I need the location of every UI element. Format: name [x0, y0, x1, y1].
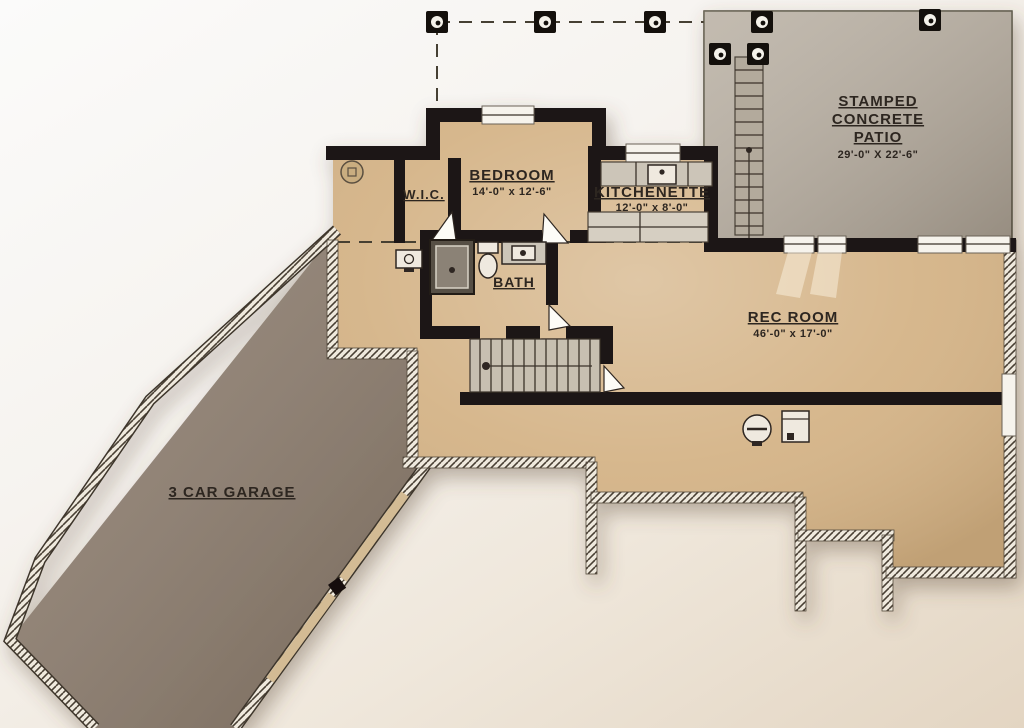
side-window — [1002, 374, 1016, 436]
structural-column — [341, 161, 363, 183]
toilet — [478, 242, 498, 278]
deck-post-icon — [644, 11, 666, 33]
bedroom-label: BEDROOM — [469, 167, 554, 184]
patio-label-line2: CONCRETE — [832, 111, 924, 128]
floor-plan-drawing: BEDROOM 14'-0" x 12'-6" W.I.C. KITCHENET… — [0, 0, 1024, 728]
shower — [430, 240, 474, 294]
deck-post-icon — [709, 43, 731, 65]
main-stairs — [470, 339, 600, 392]
kitchenette-dims: 12'-0" x 8'-0" — [616, 202, 689, 214]
deck-post-icon — [747, 43, 769, 65]
rec-room-dims: 46'-0" x 17'-0" — [753, 328, 832, 340]
wic-label: W.I.C. — [403, 187, 444, 202]
rec-room-label: REC ROOM — [748, 309, 839, 326]
furnace — [782, 411, 809, 442]
patio-stairs — [735, 57, 763, 246]
kitchenette-label: KITCHENETTE — [594, 184, 710, 201]
vanity-sink — [502, 242, 546, 264]
rec-room-window-1 — [784, 236, 814, 253]
bedroom-dims: 14'-0" x 12'-6" — [472, 186, 551, 198]
patio-label-line1: STAMPED — [838, 93, 917, 110]
garage-label: 3 CAR GARAGE — [168, 484, 295, 501]
bedroom-window — [482, 106, 534, 124]
rec-room-window-3 — [918, 236, 962, 253]
floor-plan-canvas: BEDROOM 14'-0" x 12'-6" W.I.C. KITCHENET… — [0, 0, 1024, 728]
rec-room-window-2 — [818, 236, 846, 253]
deck-post-icon — [426, 11, 448, 33]
bath-label: BATH — [493, 274, 535, 290]
kitchenette-window — [626, 144, 680, 162]
deck-post-icon — [751, 11, 773, 33]
laundry-sink — [396, 250, 422, 272]
deck-post-icon — [919, 9, 941, 31]
patio-label-line3: PATIO — [854, 129, 903, 146]
rec-room-window-4 — [966, 236, 1010, 253]
patio-dims: 29'-0" X 22'-6" — [838, 149, 919, 161]
deck-outline-dashed — [437, 22, 712, 110]
deck-post-icon — [534, 11, 556, 33]
